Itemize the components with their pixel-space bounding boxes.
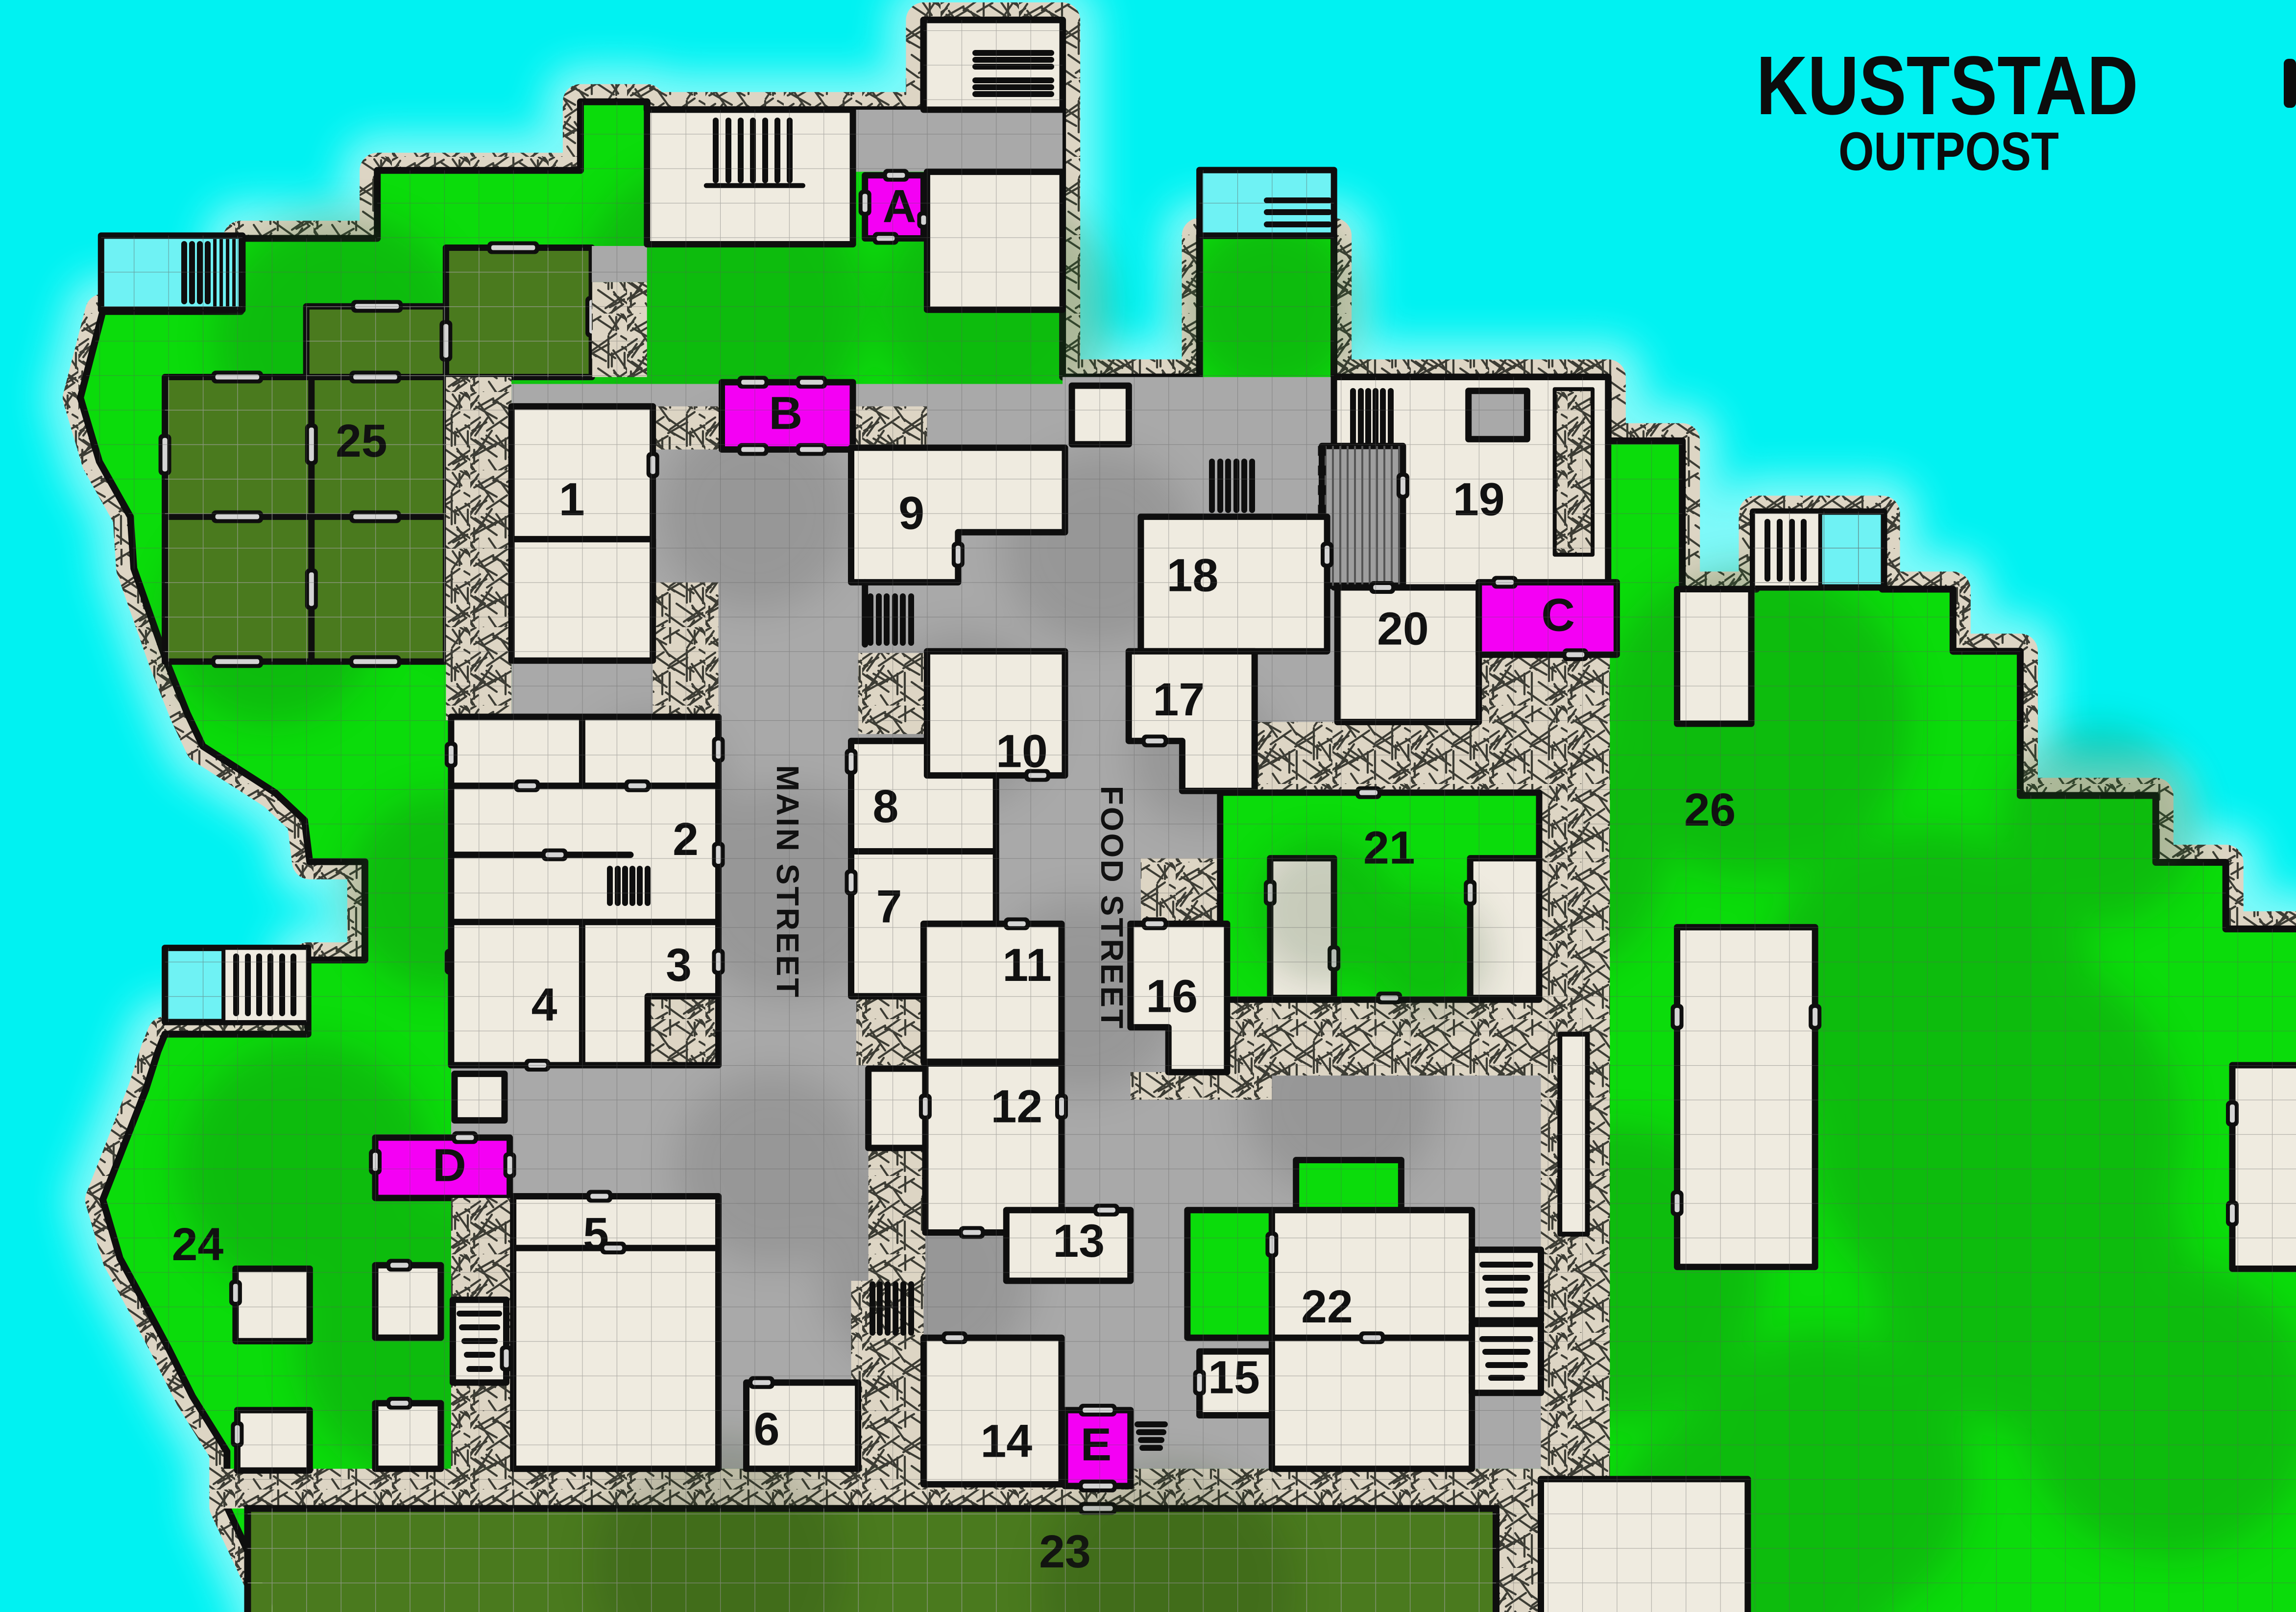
svg-text:OUTPOST: OUTPOST (1838, 122, 2059, 182)
svg-text:KUSTSTAD: KUSTSTAD (1756, 39, 2138, 132)
svg-text:FOOD STREET: FOOD STREET (1094, 786, 1130, 1030)
svg-text:MAIN STREET: MAIN STREET (770, 765, 805, 1000)
